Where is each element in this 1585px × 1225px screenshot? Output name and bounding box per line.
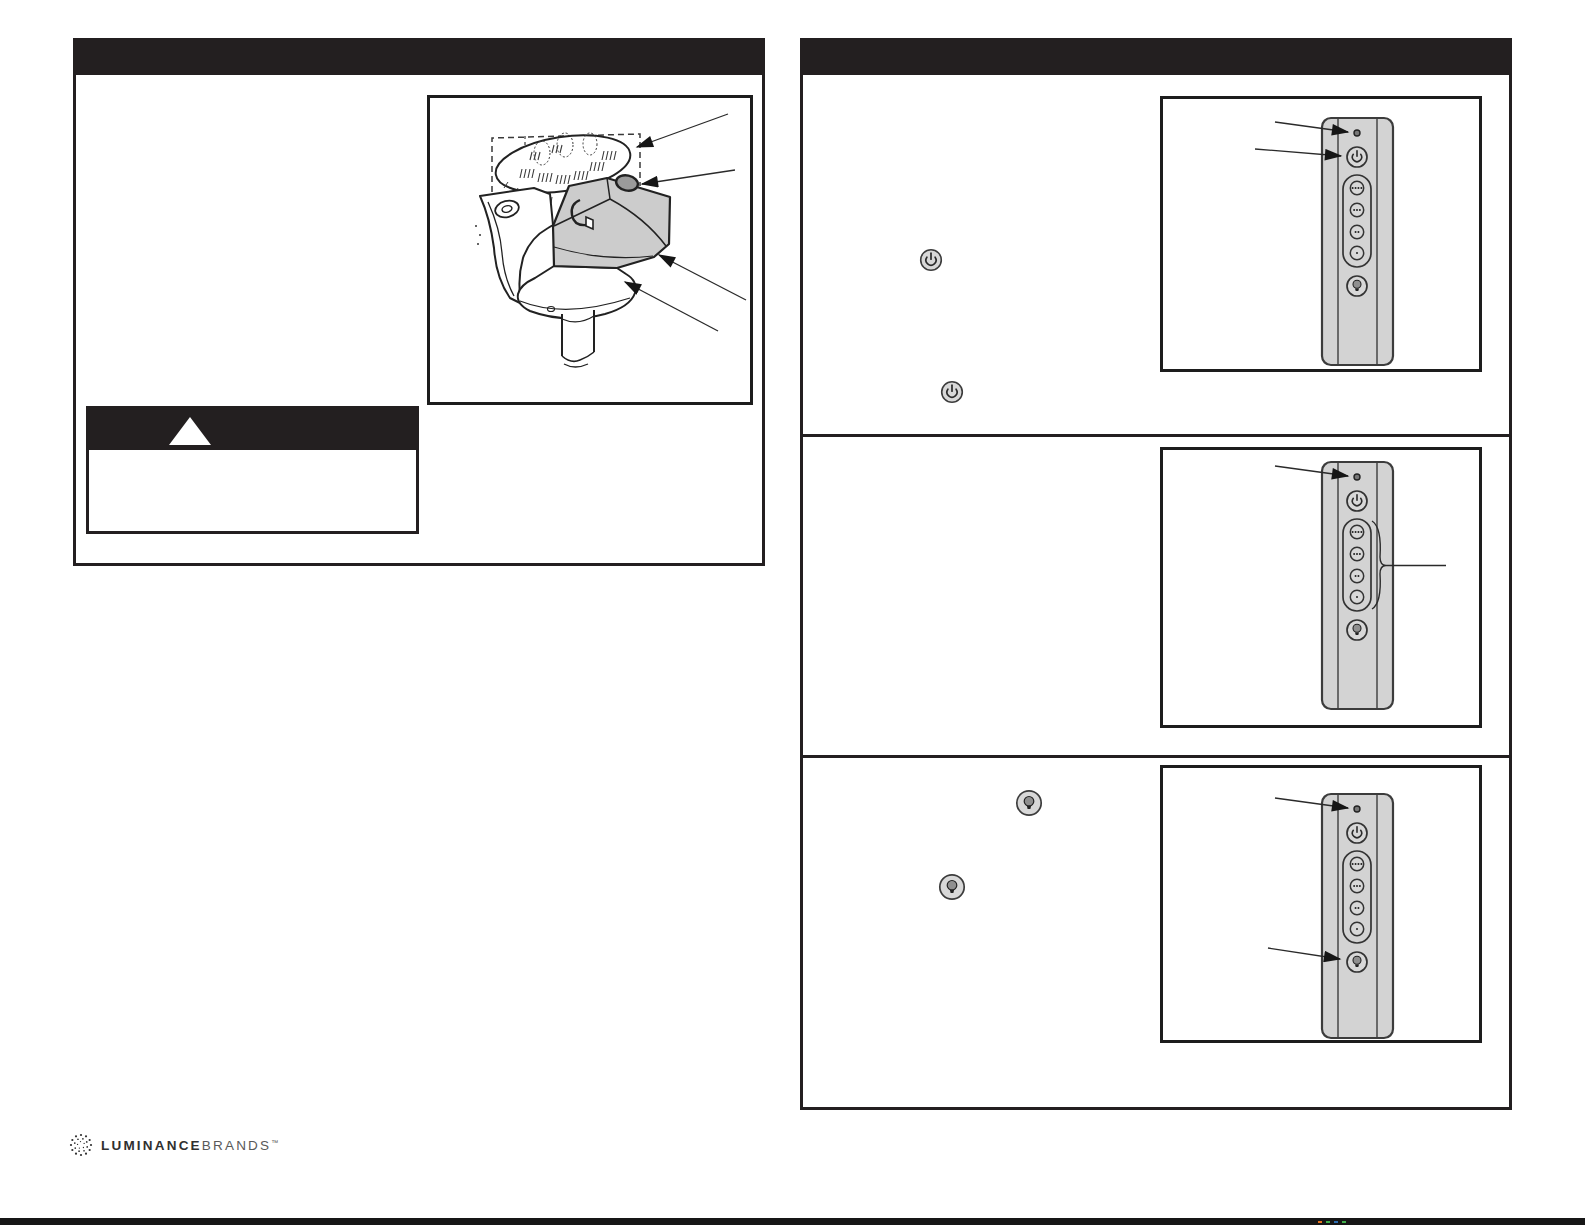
starburst-logo-icon	[68, 1132, 94, 1158]
remote-illustration	[1163, 768, 1479, 1040]
logo-text: LUMINANCEBRANDS™	[101, 1138, 278, 1153]
remote-figure-frame-3	[1160, 765, 1482, 1043]
warning-box-header	[89, 409, 416, 450]
luminance-brands-logo: LUMINANCEBRANDS™	[68, 1132, 278, 1158]
callout-arrow-canopy	[625, 282, 718, 331]
speed-2-button	[1350, 225, 1363, 238]
power-button-icon	[919, 248, 943, 272]
power-button-icon	[940, 380, 964, 404]
remote-figure-frame-2	[1160, 447, 1482, 728]
led-indicator	[1354, 474, 1360, 480]
bulb-icon	[1353, 624, 1361, 632]
bulb-icon	[1353, 280, 1361, 288]
speed-2-button	[1350, 569, 1363, 582]
warning-triangle-icon	[167, 415, 213, 447]
canopy	[518, 266, 636, 318]
registration-mark	[1318, 1221, 1322, 1223]
bottom-print-bar	[0, 1218, 1585, 1225]
callout-arrow-insulation	[637, 114, 728, 147]
light-button-icon	[1015, 789, 1043, 817]
light-button-icon	[938, 873, 966, 901]
right-section-header	[800, 38, 1512, 72]
callout-arrow-receiver	[659, 255, 746, 300]
remote-figure-frame-1	[1160, 96, 1482, 372]
bulb-icon	[1353, 956, 1361, 964]
speed-2-button	[1350, 901, 1363, 914]
registration-mark	[1342, 1221, 1346, 1223]
receiver-installation-figure	[430, 98, 750, 402]
receiver-box	[553, 178, 670, 268]
downrod	[562, 310, 594, 367]
registration-mark	[1334, 1221, 1338, 1223]
logo-text-bold: LUMINANCE	[101, 1138, 202, 1153]
receiver-figure-frame	[427, 95, 753, 405]
remote-illustration	[1163, 450, 1479, 725]
remote-illustration	[1163, 99, 1479, 369]
section-divider-1	[800, 434, 1512, 437]
section-divider-2	[800, 755, 1512, 758]
warning-box	[86, 406, 419, 534]
left-section-header	[73, 38, 765, 72]
led-indicator	[1354, 130, 1360, 136]
led-indicator	[1354, 806, 1360, 812]
manual-page: LUMINANCEBRANDS™	[0, 0, 1585, 1225]
warning-box-body	[89, 450, 416, 531]
registration-mark	[1326, 1221, 1330, 1223]
callout-arrow-antenna	[642, 170, 735, 184]
logo-trademark: ™	[271, 1138, 278, 1145]
logo-text-light: BRANDS	[202, 1138, 271, 1153]
